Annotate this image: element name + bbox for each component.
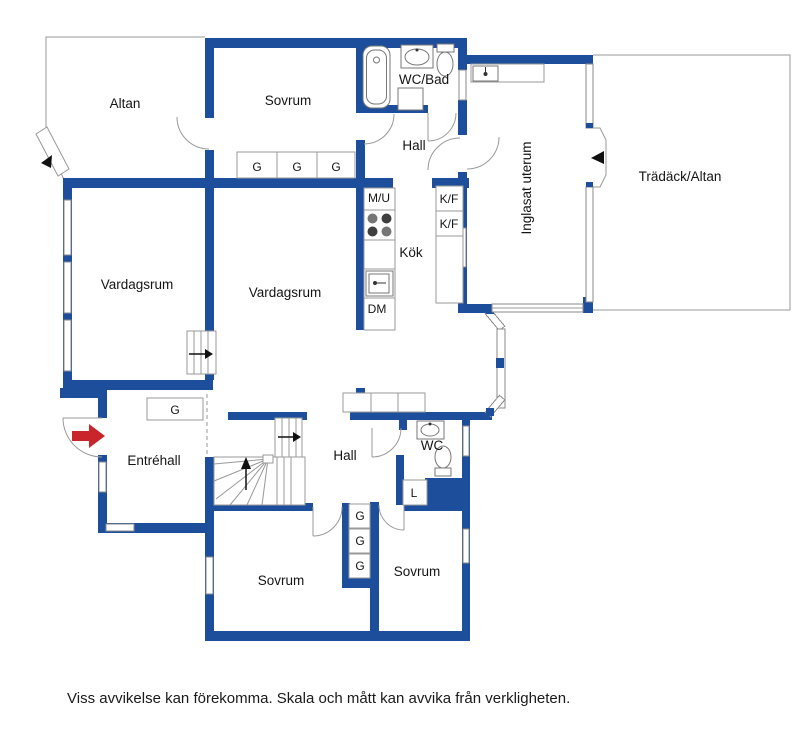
sink-icon: [473, 66, 498, 81]
room-label-hall-upper: Hall: [402, 138, 425, 153]
room-label-vardagsrum-center: Vardagsrum: [249, 285, 322, 300]
closet-label-g: G: [355, 559, 364, 573]
hall-cabinet: [343, 393, 425, 412]
room-label-vardagsrum-west: Vardagsrum: [101, 277, 174, 292]
uterum-glass-walls: [492, 64, 606, 312]
room-label-wcbad: WC/Bad: [399, 72, 449, 87]
sink-icon: [417, 421, 444, 439]
room-label-entrehall: Entréhall: [127, 453, 180, 468]
floor-plan-svg: Altan Sovrum WC/Bad Hall Inglasat uterum…: [0, 0, 800, 746]
room-label-kok: Kök: [399, 245, 423, 260]
closet-label-g: G: [355, 509, 364, 523]
room-label-sovrum-top: Sovrum: [265, 93, 312, 108]
disclaimer-text: Viss avvikelse kan förekomma. Skala och …: [67, 690, 570, 707]
closet-label-g: G: [292, 160, 301, 174]
chimney-block: [425, 478, 463, 503]
room-label-tradack: Trädäck/Altan: [639, 169, 722, 184]
shower-icon: [398, 88, 423, 110]
closet-label-g: G: [355, 534, 364, 548]
walls: [60, 38, 593, 641]
room-label-wc: WC: [421, 438, 444, 453]
entrance-arrow-icon: [72, 424, 105, 448]
room-label-sovrum-sw: Sovrum: [258, 573, 305, 588]
room-label-hall-lower: Hall: [333, 448, 356, 463]
floor-plan-page: Altan Sovrum WC/Bad Hall Inglasat uterum…: [0, 0, 800, 746]
appliance-label-mu: M/U: [368, 191, 390, 205]
room-label-uterum: Inglasat uterum: [519, 141, 534, 234]
bay-window: [485, 306, 505, 417]
uterum-fixtures: [471, 64, 544, 82]
room-label-sovrum-se: Sovrum: [394, 564, 441, 579]
closet-label-g: G: [331, 160, 340, 174]
kitchen-sink-icon: [366, 271, 393, 296]
appliance-label-kf: K/F: [440, 192, 459, 206]
altan-steps: [36, 127, 69, 176]
closet-label-g: G: [170, 403, 179, 417]
sink-icon: [401, 45, 433, 68]
steps-arrow-icon: [41, 155, 52, 168]
room-label-altan: Altan: [110, 96, 141, 111]
appliance-label-dm: DM: [368, 302, 387, 316]
closet-label-l: L: [411, 486, 418, 500]
appliance-label-kf: K/F: [440, 217, 459, 231]
closet-label-g: G: [252, 160, 261, 174]
